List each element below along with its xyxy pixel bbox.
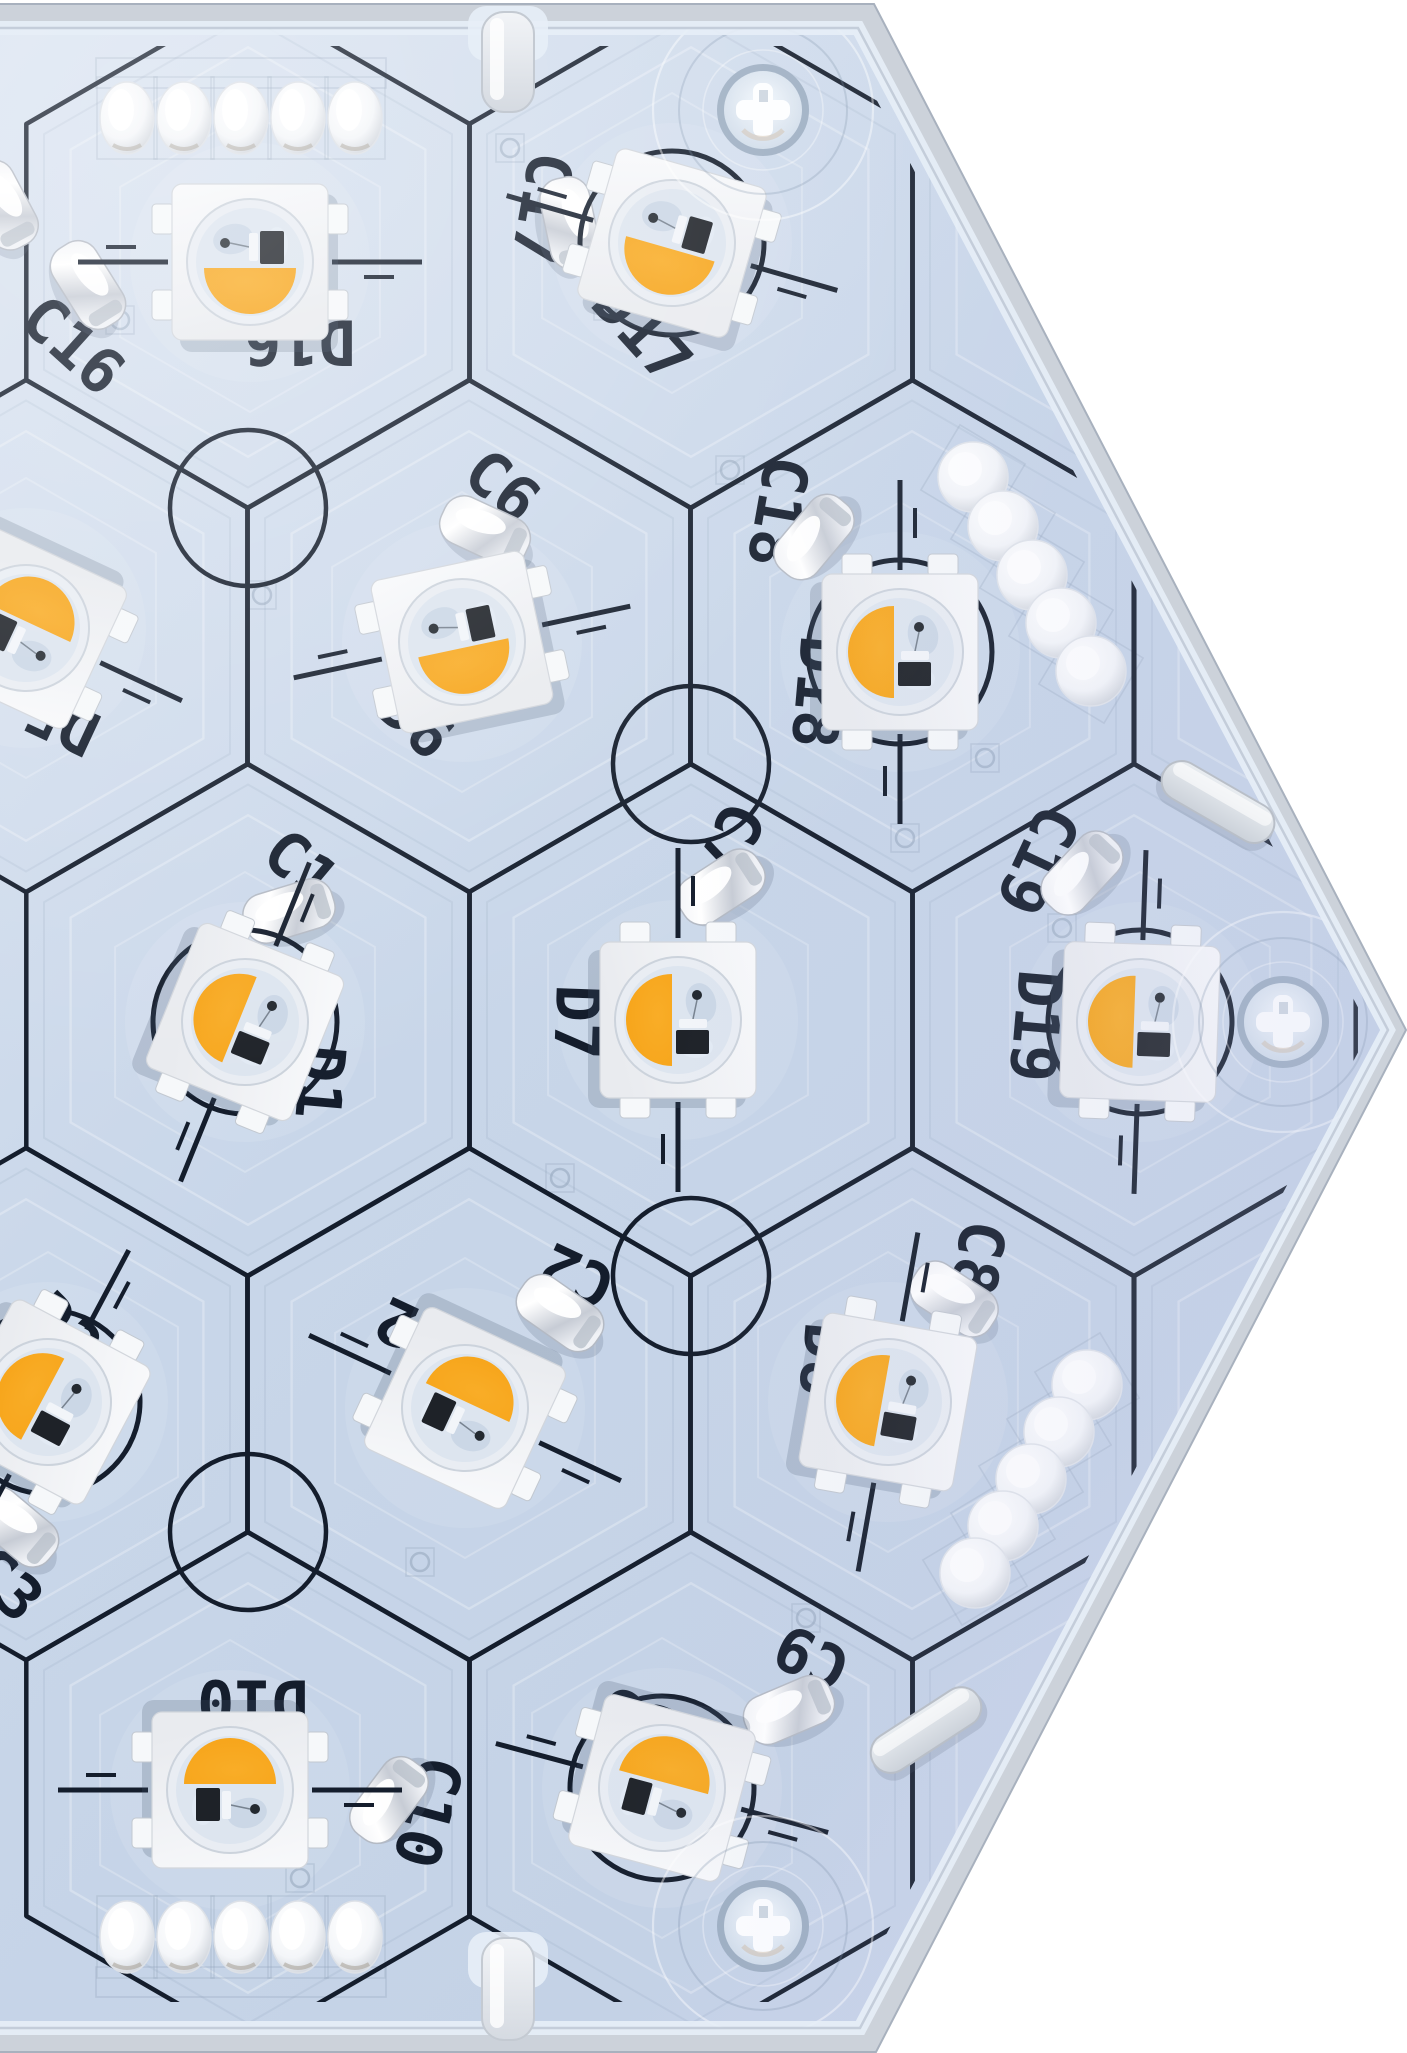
pcb-photo-svg: C16D16C17D17C6D6C18D18C1D1C7D7C19D19C2D2… (0, 0, 1407, 2053)
notch-post-highlight (490, 1944, 504, 2028)
pcb-photo: C16D16C17D17C6D6C18D18C1D1C7D7C19D19C2D2… (0, 0, 1407, 2053)
notch-post (482, 1938, 534, 2040)
notch-post (482, 12, 534, 112)
notch-post-highlight (490, 18, 504, 100)
